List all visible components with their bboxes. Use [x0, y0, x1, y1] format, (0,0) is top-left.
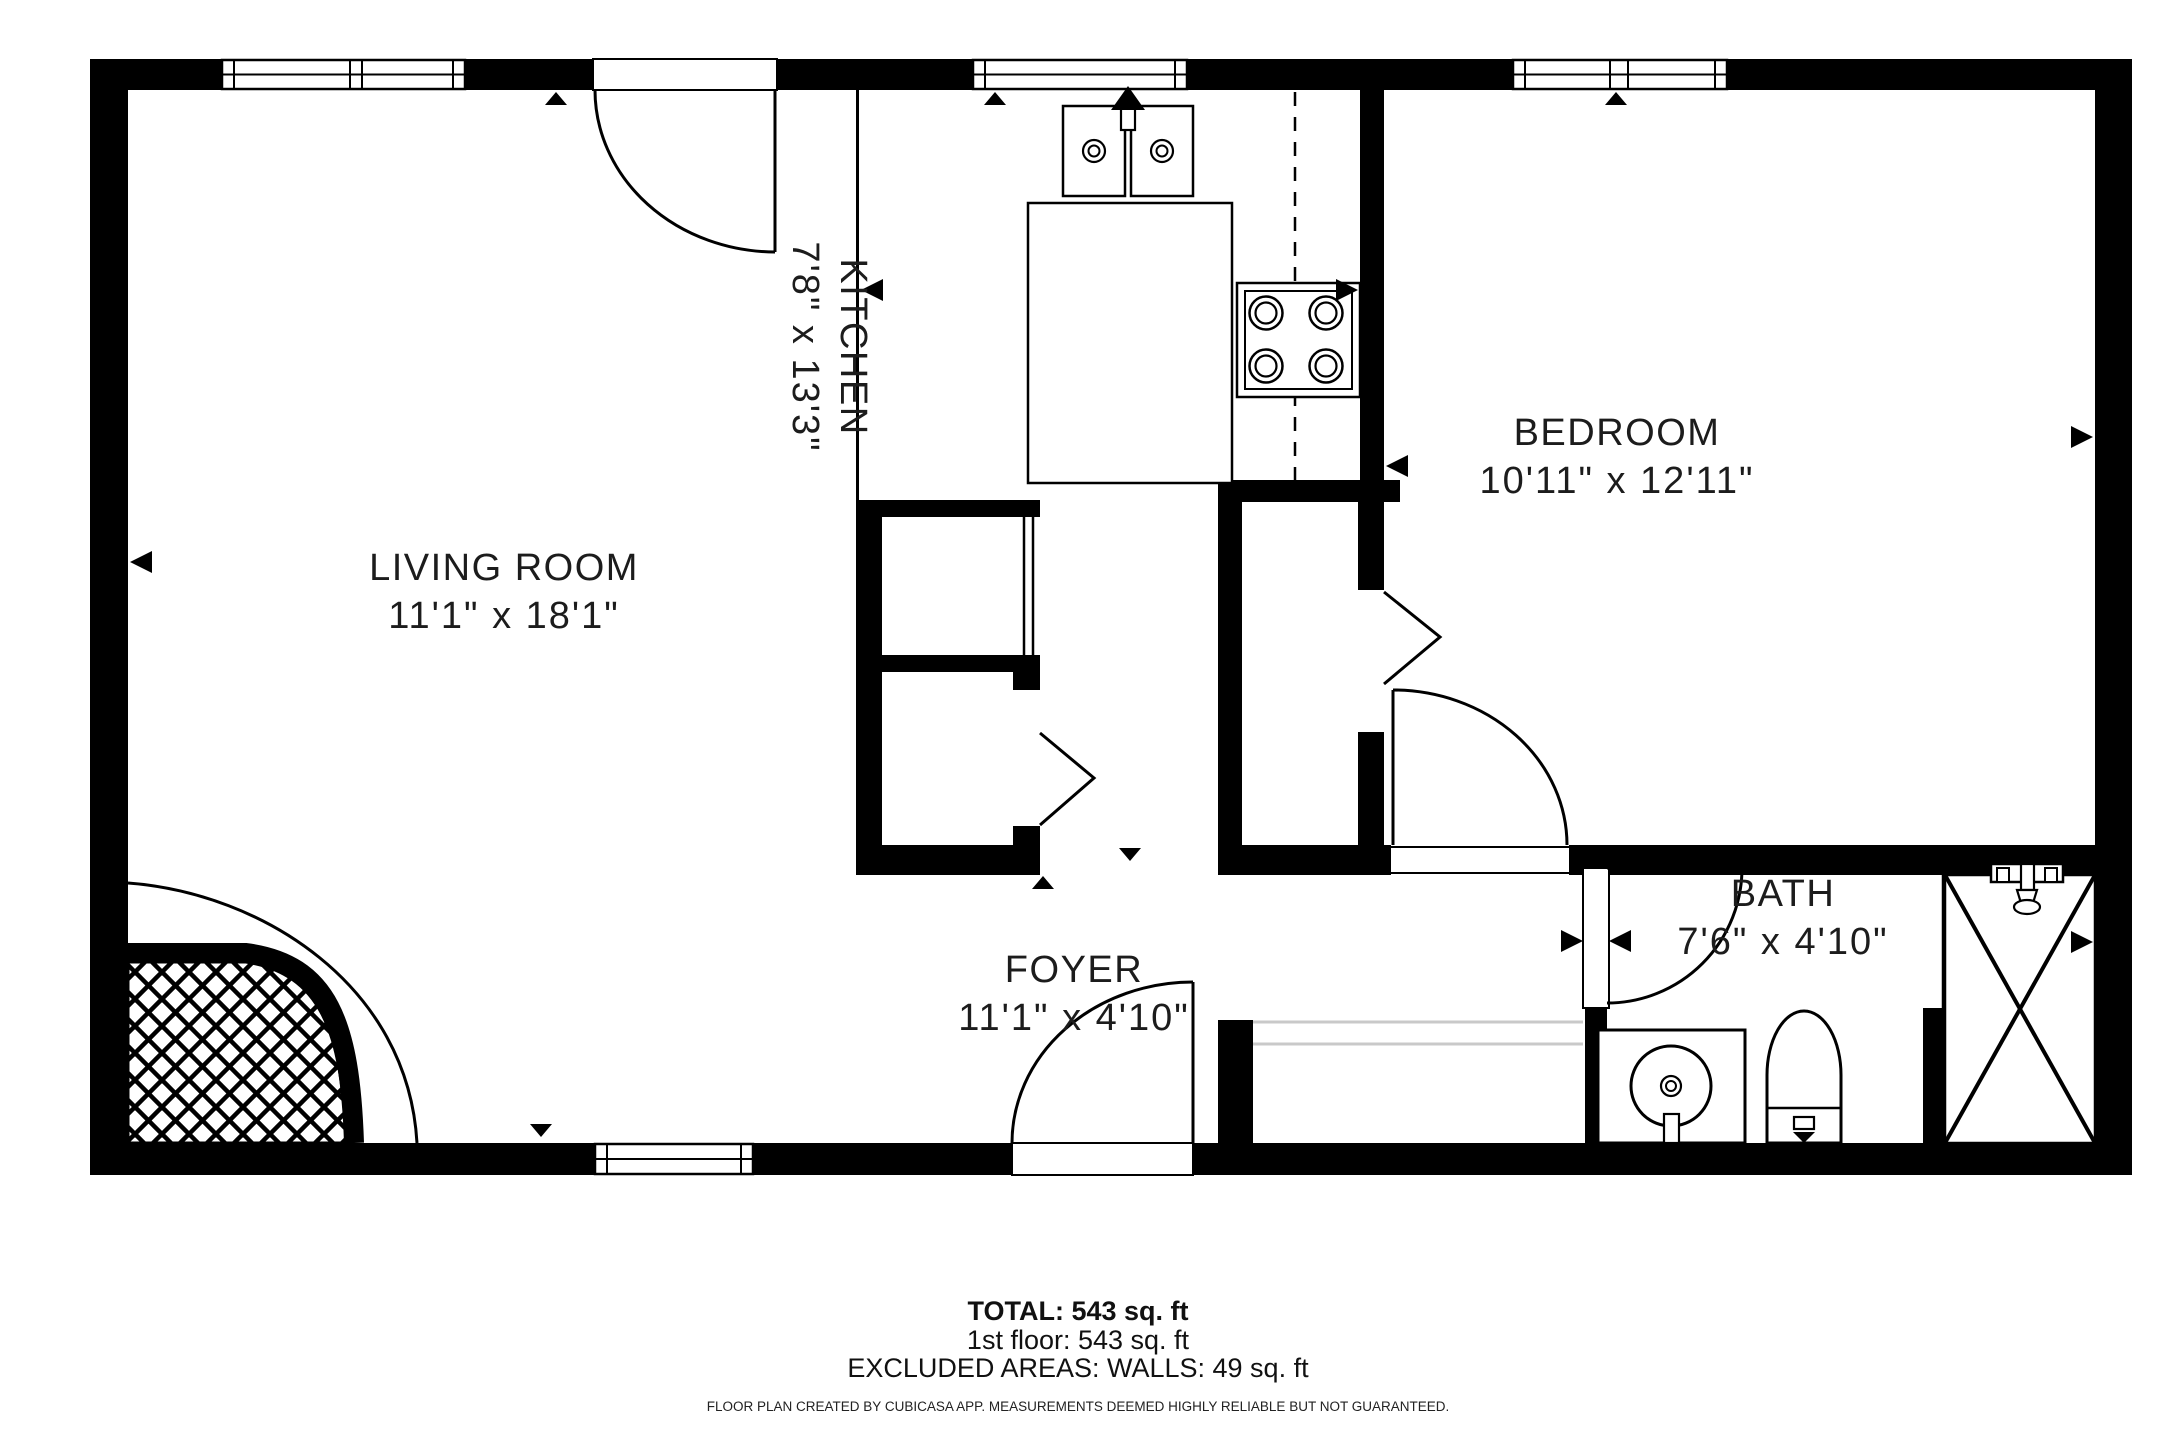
back-door-opening [593, 59, 777, 90]
marker-left-icon [1386, 455, 1408, 477]
living-room-bottom-window-icon [595, 1144, 753, 1174]
shower-icon [1943, 864, 2095, 1143]
kitchen-fixtures [1028, 86, 1360, 483]
marker-down-icon [1119, 848, 1141, 861]
bedroom-door-opening [1391, 845, 1569, 875]
bedroom-window-icon [1513, 60, 1727, 89]
first-floor-area-text: 1st floor: 543 sq. ft [707, 1326, 1449, 1354]
marker-left-icon [130, 551, 152, 573]
room-name: KITCHEN [828, 241, 876, 452]
double-sink-icon [1063, 86, 1193, 196]
bath-label: BATH 7'6" x 4'10" [1677, 871, 1888, 967]
area-summary: TOTAL: 543 sq. ft 1st floor: 543 sq. ft … [707, 1297, 1449, 1415]
foyer-label: FOYER 11'1" x 4'10" [958, 947, 1190, 1043]
toilet-icon [1767, 1011, 1841, 1143]
kitchen-counter [1028, 203, 1232, 483]
living-room-window-icon [222, 60, 465, 89]
floor-plan-page: LIVING ROOM 11'1" x 18'1" KITCHEN 7'8" x… [0, 0, 2173, 1448]
front-door-opening [1012, 1143, 1193, 1175]
marker-right-icon [2071, 426, 2093, 448]
porch-opening-lines [1253, 1022, 1583, 1044]
marker-up-icon [545, 92, 567, 105]
kitchen-label: KITCHEN 7'8" x 13'3" [780, 241, 876, 452]
back-door-icon [595, 90, 775, 252]
marker-up-icon [1605, 92, 1627, 105]
room-name: LIVING ROOM [369, 545, 639, 593]
living-room-label: LIVING ROOM 11'1" x 18'1" [369, 545, 639, 641]
marker-up-icon [984, 92, 1006, 105]
bath-door-opening [1583, 868, 1609, 1008]
room-dimensions: 7'6" x 4'10" [1677, 919, 1888, 967]
bedroom-door-icon [1393, 690, 1567, 845]
room-name: BATH [1677, 871, 1888, 919]
marker-right-icon [1561, 930, 1583, 952]
closet-bifold-door-icon [1040, 733, 1094, 825]
disclaimer-text: FLOOR PLAN CREATED BY CUBICASA APP. MEAS… [707, 1399, 1449, 1415]
fireplace-icon [128, 883, 417, 1143]
bedroom-closet-bifold-door-icon [1384, 592, 1440, 684]
room-dimensions: 11'1" x 4'10" [958, 995, 1190, 1043]
room-dimensions: 7'8" x 13'3" [780, 241, 828, 452]
room-name: FOYER [958, 947, 1190, 995]
marker-left-icon [1609, 930, 1631, 952]
room-dimensions: 11'1" x 18'1" [369, 593, 639, 641]
kitchen-window-icon [973, 60, 1187, 89]
excluded-areas-text: EXCLUDED AREAS: WALLS: 49 sq. ft [707, 1354, 1449, 1382]
total-area-text: TOTAL: 543 sq. ft [707, 1297, 1449, 1326]
stove-icon [1237, 283, 1360, 397]
room-name: BEDROOM [1479, 410, 1754, 458]
vanity-sink-icon [1598, 1030, 1745, 1143]
bedroom-label: BEDROOM 10'11" x 12'11" [1479, 410, 1754, 506]
room-dimensions: 10'11" x 12'11" [1479, 458, 1754, 506]
marker-up-icon [1032, 876, 1054, 889]
marker-down-icon [530, 1124, 552, 1137]
floor-plan-drawing [0, 0, 2173, 1448]
closet-sliding-door-icon [1024, 517, 1033, 655]
